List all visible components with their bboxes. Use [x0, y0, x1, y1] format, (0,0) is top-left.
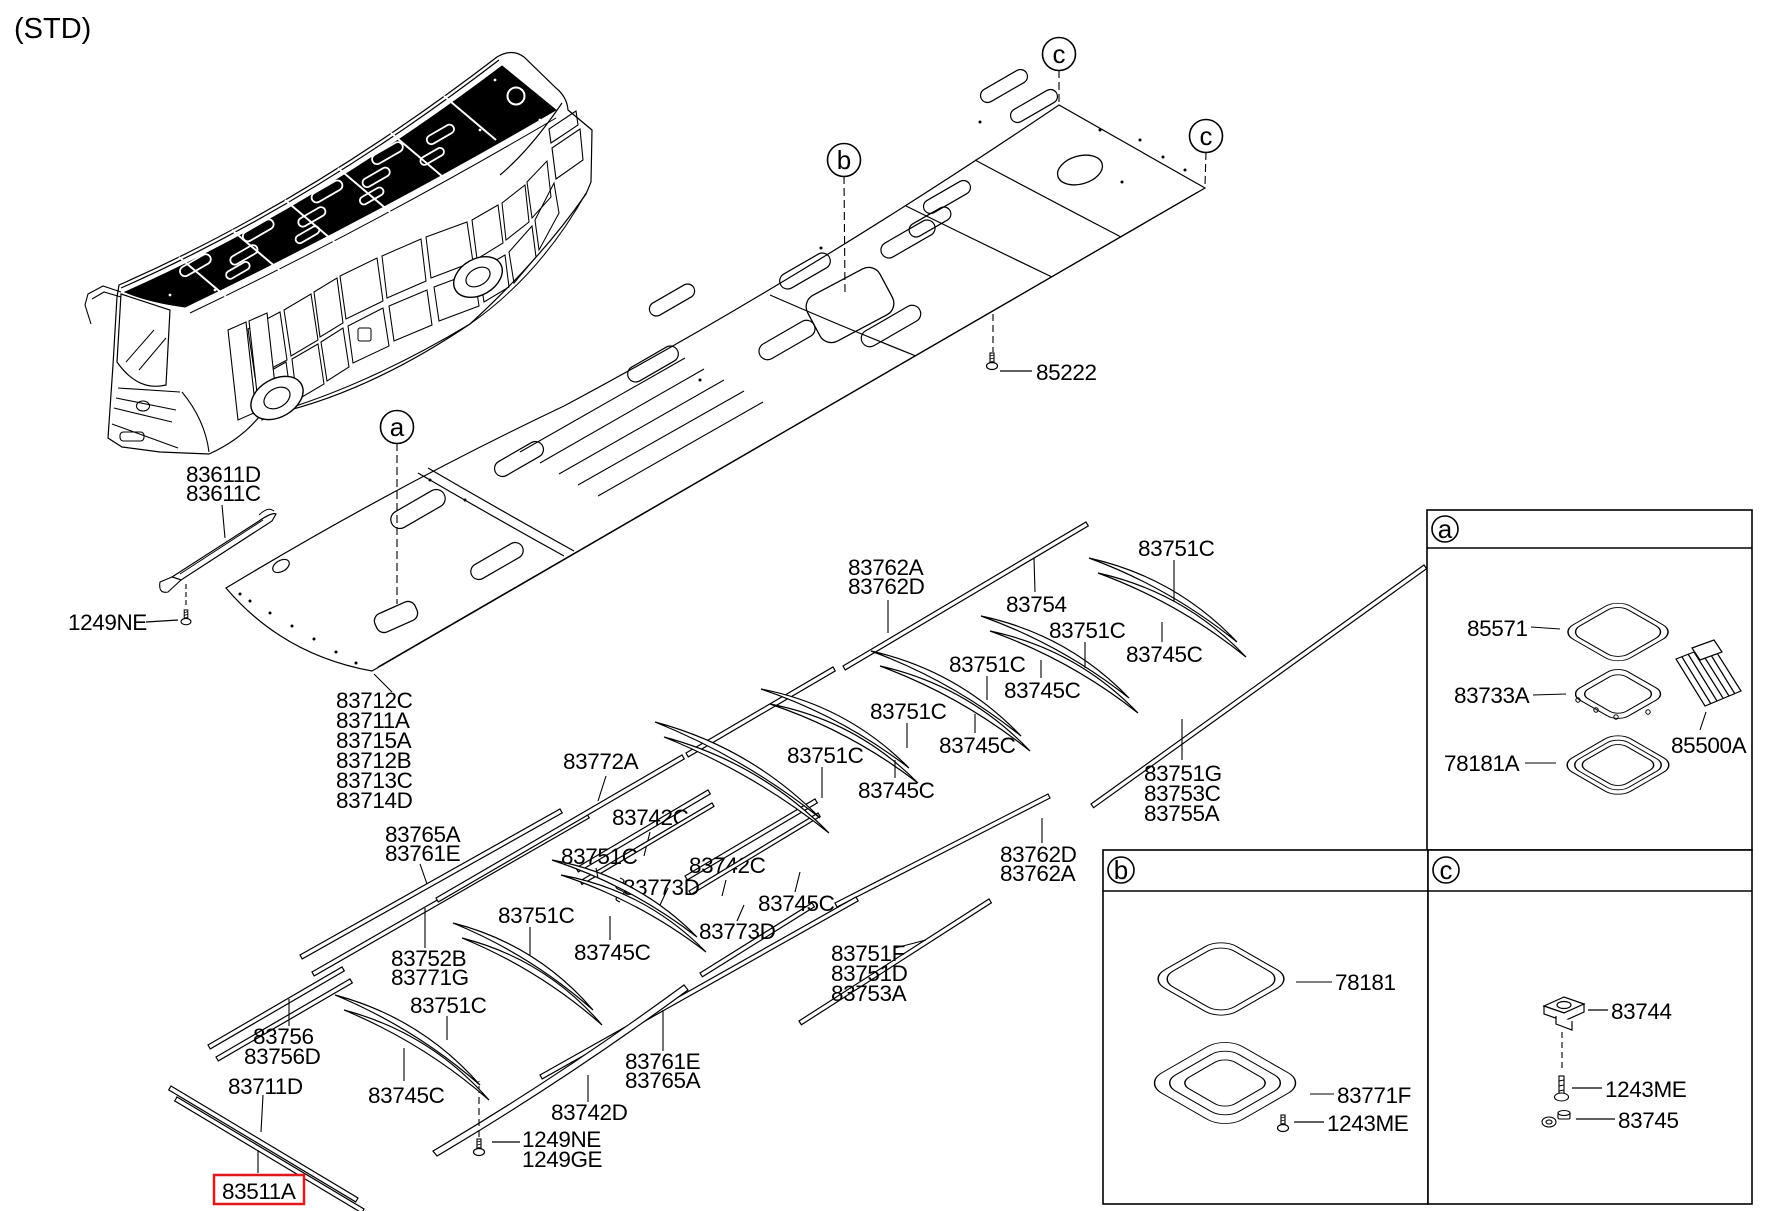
svg-text:1249GE: 1249GE [522, 1147, 603, 1172]
svg-text:83745C: 83745C [1126, 642, 1203, 667]
svg-text:1243ME: 1243ME [1605, 1077, 1687, 1102]
svg-text:83761E: 83761E [385, 841, 461, 866]
svg-text:a: a [390, 412, 405, 442]
svg-text:83765A: 83765A [625, 1068, 701, 1093]
svg-text:83762D: 83762D [848, 574, 925, 599]
svg-text:83611C: 83611C [186, 481, 261, 506]
svg-text:83745C: 83745C [368, 1083, 445, 1108]
svg-text:83754: 83754 [1006, 592, 1067, 617]
svg-text:83751C: 83751C [949, 652, 1026, 677]
svg-text:c: c [1053, 39, 1066, 69]
svg-text:1249NE: 1249NE [68, 610, 147, 635]
svg-text:83751C: 83751C [498, 903, 575, 928]
svg-text:c: c [1440, 855, 1453, 885]
svg-text:(STD): (STD) [14, 13, 91, 45]
svg-text:b: b [837, 145, 851, 175]
svg-text:78181A: 78181A [1444, 751, 1520, 776]
svg-text:83772A: 83772A [563, 749, 639, 774]
svg-text:83745C: 83745C [758, 891, 835, 916]
svg-text:83745C: 83745C [1004, 678, 1081, 703]
svg-text:b: b [1114, 855, 1128, 885]
svg-text:1243ME: 1243ME [1327, 1111, 1409, 1136]
svg-text:83751C: 83751C [1049, 618, 1126, 643]
svg-text:85571: 85571 [1467, 616, 1528, 641]
svg-text:85222: 85222 [1036, 360, 1097, 385]
svg-text:83751C: 83751C [787, 743, 864, 768]
svg-text:83751C: 83751C [561, 844, 638, 869]
svg-text:83733A: 83733A [1454, 683, 1530, 708]
svg-text:83773D: 83773D [699, 919, 776, 944]
svg-text:83756D: 83756D [244, 1044, 321, 1069]
svg-text:83771F: 83771F [1337, 1083, 1411, 1108]
svg-text:83745C: 83745C [939, 733, 1016, 758]
svg-text:83751C: 83751C [870, 699, 947, 724]
svg-text:83511A: 83511A [222, 1179, 296, 1204]
svg-text:85500A: 85500A [1671, 733, 1747, 758]
svg-text:a: a [1438, 514, 1453, 544]
svg-text:83753A: 83753A [831, 981, 907, 1006]
svg-text:83771G: 83771G [391, 965, 469, 990]
svg-text:c: c [1200, 121, 1213, 151]
svg-text:83745: 83745 [1618, 1108, 1679, 1133]
svg-text:83745C: 83745C [858, 778, 935, 803]
svg-text:83742D: 83742D [551, 1100, 628, 1125]
svg-text:83762A: 83762A [1000, 861, 1076, 886]
svg-text:83751C: 83751C [1138, 536, 1215, 561]
svg-text:78181: 78181 [1335, 970, 1396, 995]
svg-text:83751C: 83751C [410, 993, 487, 1018]
svg-text:83711D: 83711D [228, 1074, 303, 1099]
svg-text:83714D: 83714D [336, 788, 413, 813]
svg-text:83755A: 83755A [1144, 801, 1220, 826]
svg-text:83744: 83744 [1611, 999, 1672, 1024]
svg-text:83745C: 83745C [574, 940, 651, 965]
